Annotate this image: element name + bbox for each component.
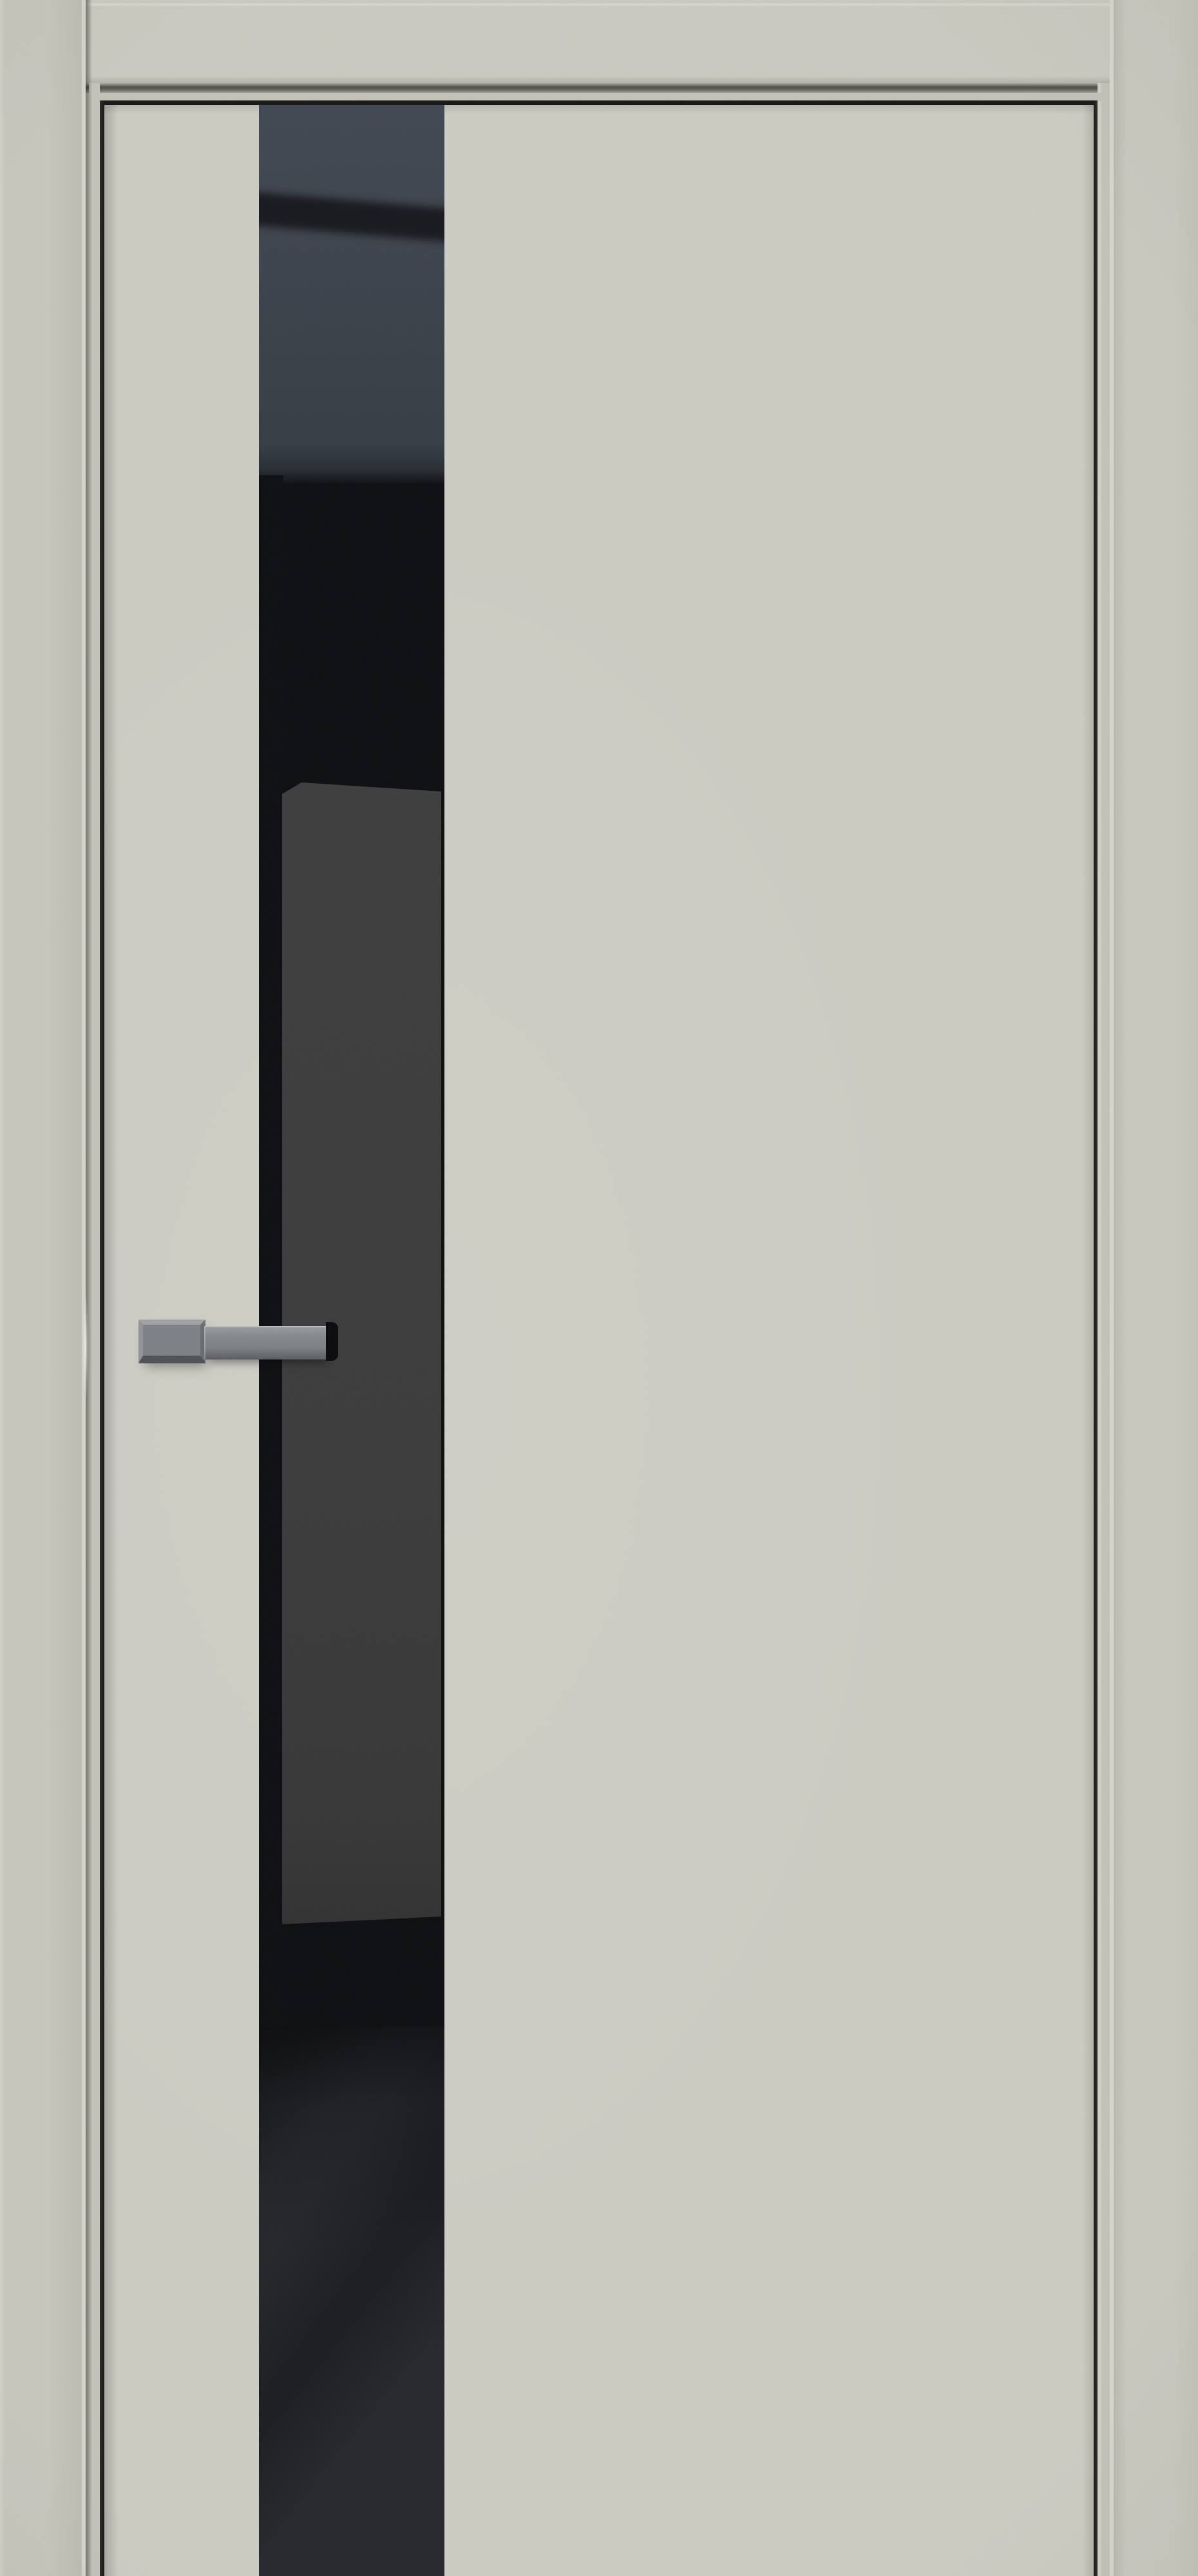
frame-header-bevel: [86, 76, 1110, 83]
left-wall-casing: [0, 0, 86, 2576]
frame-header-shadow-gap: [86, 83, 1110, 93]
right-wall-casing: [1114, 0, 1198, 2576]
frame-header-top-edge: [86, 3, 1110, 6]
handle-base-rosette: [138, 1320, 205, 1363]
hinge-gap-highlight: [83, 1291, 88, 1401]
glass-reflection-sky: [259, 105, 444, 483]
casing-ridge-right: [1110, 0, 1114, 2576]
frame-jamb-right: [1098, 83, 1110, 2576]
glass-reflection-floor: [259, 2027, 444, 2576]
door-leaf-outline-right: [1094, 100, 1098, 2576]
handle-lever-arm: [204, 1326, 327, 1359]
door-product-photo: [0, 0, 1198, 2576]
door-leaf-outline-left: [100, 100, 104, 2576]
top-frame-header: [86, 0, 1110, 83]
casing-shadow-left: [86, 0, 92, 2576]
lever-handle: [138, 1320, 338, 1363]
handle-end-cap: [326, 1322, 338, 1361]
